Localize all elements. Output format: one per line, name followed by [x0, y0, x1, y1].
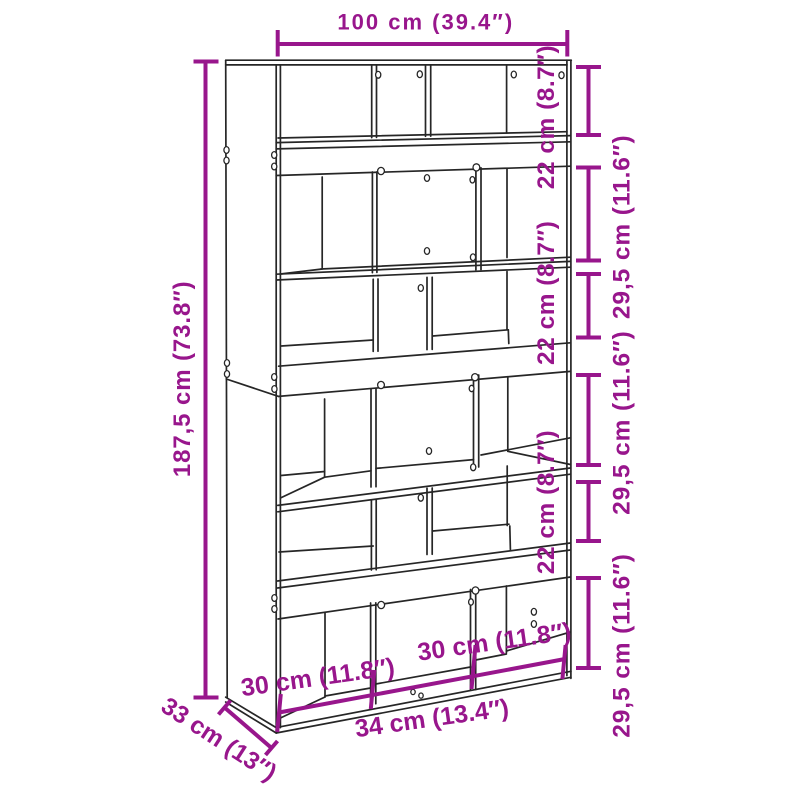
svg-text:100 cm (39.4″): 100 cm (39.4″) [337, 10, 514, 35]
svg-text:22 cm (8.7″): 22 cm (8.7″) [533, 45, 560, 189]
svg-text:22 cm (8.7″): 22 cm (8.7″) [533, 221, 560, 365]
svg-text:29,5 cm (11.6″): 29,5 cm (11.6″) [608, 135, 635, 320]
svg-text:22 cm (8.7″): 22 cm (8.7″) [533, 430, 560, 574]
svg-text:187,5 cm (73.8″): 187,5 cm (73.8″) [169, 280, 196, 477]
svg-text:29,5 cm (11.6″): 29,5 cm (11.6″) [608, 553, 635, 738]
svg-text:29,5 cm (11.6″): 29,5 cm (11.6″) [608, 330, 635, 515]
